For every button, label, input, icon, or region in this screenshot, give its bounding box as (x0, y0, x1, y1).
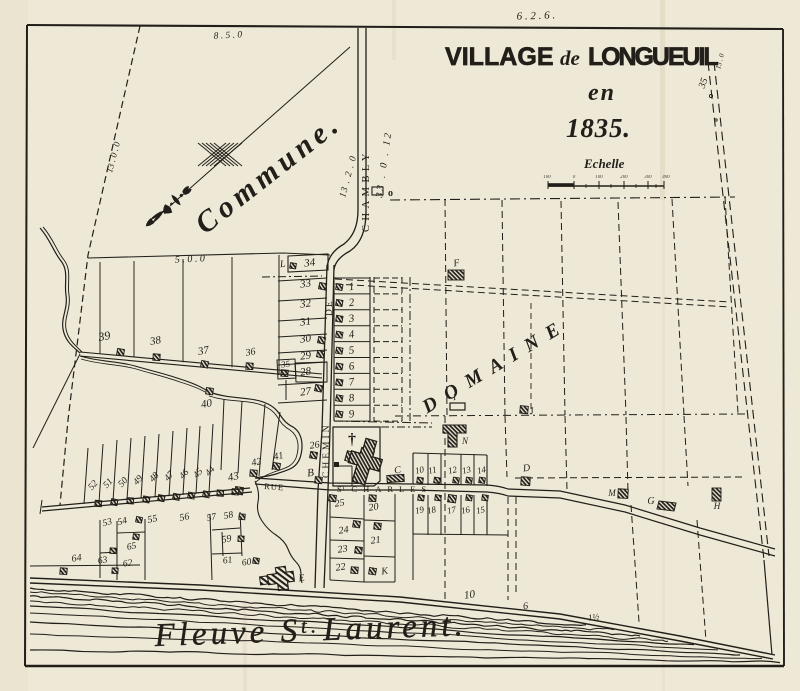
svg-text:65: 65 (126, 541, 137, 553)
svg-text:CHEMIN: CHEMIN (322, 423, 332, 478)
svg-text:39: 39 (96, 328, 111, 344)
svg-text:64: 64 (71, 552, 82, 564)
svg-text:29: 29 (299, 349, 312, 362)
svg-text:en: en (588, 80, 616, 106)
svg-text:36: 36 (244, 346, 257, 359)
svg-text:1½: 1½ (587, 611, 600, 623)
svg-text:RUE: RUE (264, 481, 285, 492)
svg-text:200: 200 (620, 175, 628, 180)
svg-text:Echelle: Echelle (583, 156, 625, 171)
svg-text:8 . 5 . 0: 8 . 5 . 0 (213, 30, 242, 41)
svg-text:33: 33 (298, 277, 312, 291)
svg-text:LONGUEUIL: LONGUEUIL (588, 43, 720, 71)
svg-text:23: 23 (337, 543, 348, 555)
svg-text:60: 60 (241, 557, 252, 568)
svg-text:21: 21 (370, 534, 381, 546)
svg-text:22: 22 (335, 561, 346, 573)
svg-text:62: 62 (122, 558, 133, 569)
svg-text:27: 27 (299, 385, 312, 398)
svg-text:32: 32 (298, 297, 312, 311)
svg-text:N: N (461, 436, 469, 446)
svg-text:1835.: 1835. (566, 113, 630, 143)
svg-text:M: M (607, 488, 616, 498)
svg-text:26: 26 (309, 439, 320, 451)
svg-text:300: 300 (644, 175, 652, 180)
svg-text:100: 100 (543, 175, 551, 180)
svg-text:61: 61 (222, 555, 233, 566)
svg-text:30: 30 (298, 332, 312, 346)
svg-text:31: 31 (298, 315, 312, 329)
svg-text:H: H (713, 501, 721, 511)
svg-text:CHAMBLY: CHAMBLY (361, 149, 372, 232)
svg-text:10: 10 (463, 588, 476, 601)
svg-text:VILLAGE: VILLAGE (445, 43, 555, 71)
svg-text:20: 20 (368, 501, 379, 513)
svg-text:400: 400 (662, 175, 670, 180)
svg-text:G: G (647, 496, 654, 507)
svg-text:24: 24 (338, 524, 349, 536)
svg-text:6 . 2 . 6 .: 6 . 2 . 6 . (516, 9, 555, 22)
svg-text:100: 100 (595, 175, 603, 180)
svg-text:†: † (348, 431, 356, 448)
svg-text:34: 34 (303, 256, 317, 269)
svg-text:o: o (388, 188, 393, 199)
svg-text:de: de (560, 46, 580, 70)
svg-text:35: 35 (279, 358, 291, 369)
svg-text:5 . 0 . 0: 5 . 0 . 0 (175, 253, 206, 266)
